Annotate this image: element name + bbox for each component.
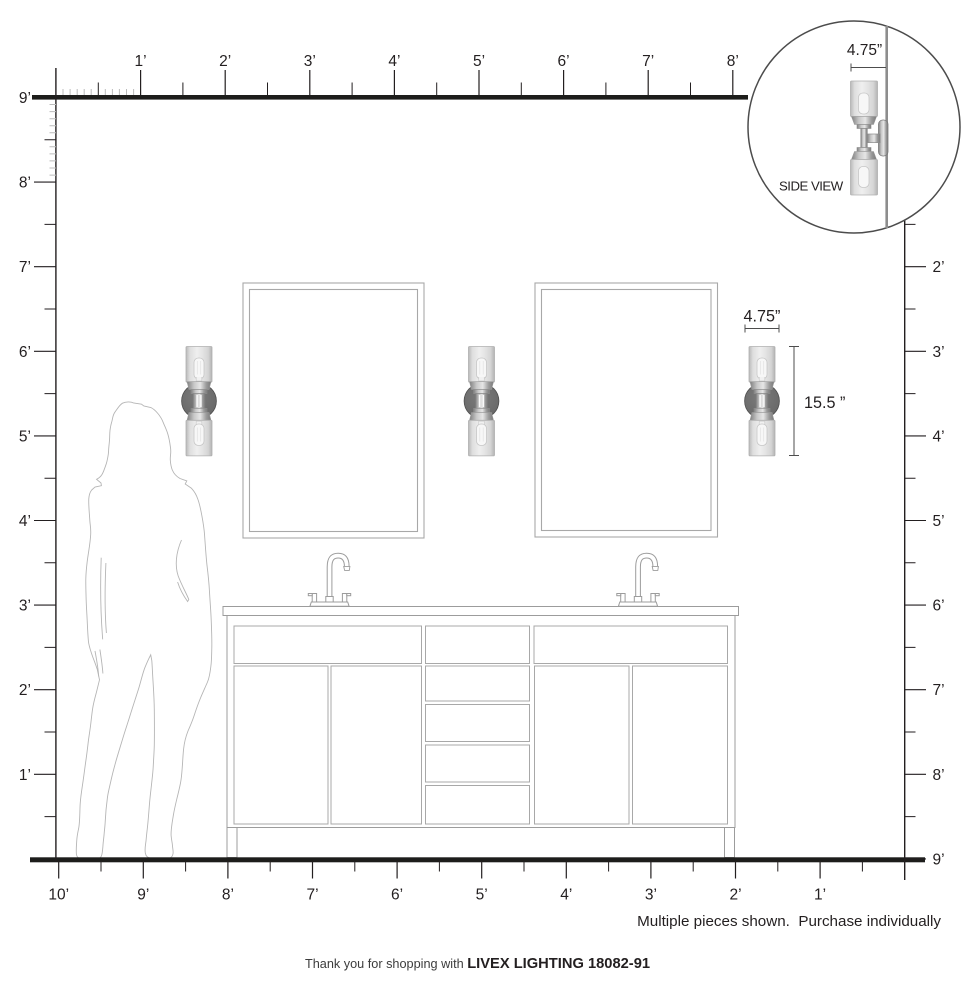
- svg-text:7’: 7’: [19, 259, 31, 276]
- svg-text:5’: 5’: [19, 428, 31, 445]
- svg-text:8’: 8’: [727, 53, 739, 70]
- svg-text:2’: 2’: [219, 53, 231, 70]
- svg-text:1’: 1’: [814, 887, 826, 904]
- svg-text:1’: 1’: [135, 53, 147, 70]
- svg-text:3’: 3’: [304, 53, 316, 70]
- svg-text:15.5 ”: 15.5 ”: [804, 394, 845, 412]
- svg-text:6’: 6’: [558, 53, 570, 70]
- svg-text:3’: 3’: [19, 598, 31, 615]
- svg-text:2’: 2’: [933, 259, 945, 276]
- svg-text:6’: 6’: [19, 344, 31, 361]
- svg-text:9’: 9’: [137, 887, 149, 904]
- svg-text:4’: 4’: [19, 513, 31, 530]
- svg-text:2’: 2’: [19, 682, 31, 699]
- svg-text:2’: 2’: [729, 887, 741, 904]
- svg-text:9’: 9’: [19, 90, 31, 107]
- svg-text:6’: 6’: [391, 887, 403, 904]
- svg-text:5’: 5’: [476, 887, 488, 904]
- svg-text:4’: 4’: [560, 887, 572, 904]
- svg-text:Thank you for shopping with LI: Thank you for shopping with LIVEX LIGHTI…: [305, 956, 650, 972]
- svg-text:4.75”: 4.75”: [744, 308, 781, 326]
- svg-text:4’: 4’: [933, 428, 945, 445]
- svg-text:6’: 6’: [933, 598, 945, 615]
- svg-text:5’: 5’: [933, 513, 945, 530]
- svg-text:8’: 8’: [933, 767, 945, 784]
- svg-text:4.75”: 4.75”: [847, 42, 882, 59]
- svg-text:1’: 1’: [19, 767, 31, 784]
- svg-text:9’: 9’: [933, 851, 945, 868]
- svg-text:7’: 7’: [306, 887, 318, 904]
- svg-text:3’: 3’: [933, 344, 945, 361]
- svg-text:8’: 8’: [222, 887, 234, 904]
- svg-text:7’: 7’: [642, 53, 654, 70]
- svg-text:Multiple pieces shown. Purcha: Multiple pieces shown. Purchase individu…: [637, 913, 941, 930]
- svg-text:5’: 5’: [473, 53, 485, 70]
- svg-text:3’: 3’: [645, 887, 657, 904]
- svg-text:10’: 10’: [48, 887, 69, 904]
- svg-text:8’: 8’: [19, 175, 31, 192]
- svg-text:4’: 4’: [388, 53, 400, 70]
- svg-text:7’: 7’: [933, 682, 945, 699]
- svg-text:SIDE VIEW: SIDE VIEW: [779, 179, 844, 194]
